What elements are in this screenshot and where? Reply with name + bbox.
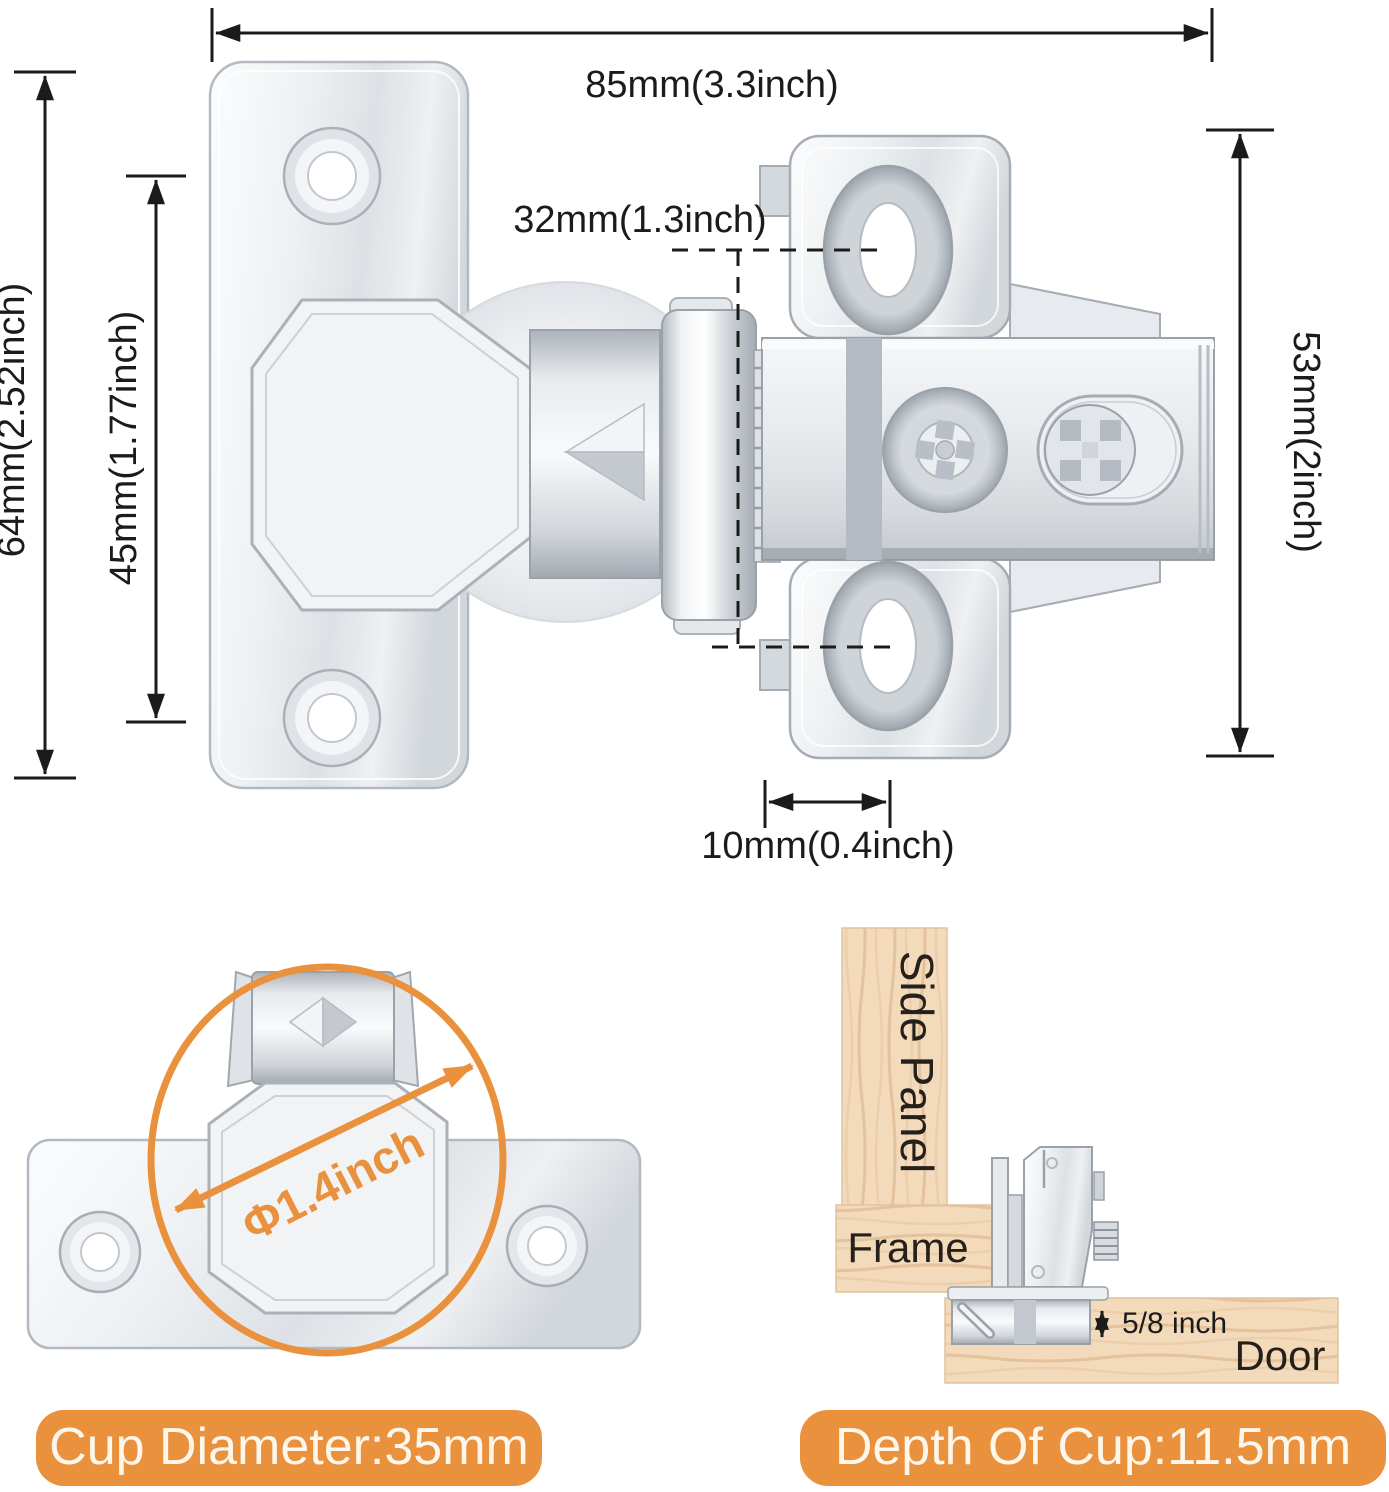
adjust-screw [883, 388, 1007, 512]
cup-view-hole-left [60, 1212, 140, 1292]
dim-64-label: 64mm(2.52inch) [0, 283, 33, 558]
frame-label: Frame [847, 1224, 968, 1271]
hinge-pin-detail [1094, 1172, 1104, 1200]
cup-badge-label: Cup Diameter:35mm [49, 1418, 529, 1476]
side-panel-label: Side Panel [891, 951, 943, 1174]
dim-door-hole-spacing: 45mm(1.77inch) [103, 176, 186, 722]
door-label: Door [1234, 1332, 1325, 1379]
door-plate-hole-bottom [284, 670, 380, 766]
overlay-label: 5/8 inch [1122, 1307, 1227, 1340]
cam-adjuster [1038, 396, 1182, 504]
hinge-screw [1094, 1222, 1118, 1260]
cup-flange [948, 1287, 1108, 1300]
mounting-wing-top [1010, 284, 1160, 340]
dim-10-label: 10mm(0.4inch) [701, 825, 954, 867]
arm-bottom-shadow [762, 548, 1214, 560]
main-hinge-diagram: 85mm(3.3inch) 64mm(2.52inch) 45mm(1.77in… [0, 8, 1327, 867]
installation-view: Side Panel Frame Door 5/8 inch [800, 928, 1386, 1486]
dim-plate-height: 64mm(2.52inch) [0, 72, 76, 778]
hinge-bracket [1008, 1195, 1022, 1287]
mounting-plate [760, 136, 1214, 758]
arm-left-band [846, 338, 882, 560]
cup-foot-band [1014, 1300, 1036, 1344]
door-plate-hole-top [284, 128, 380, 224]
hinge-dimension-diagram: 85mm(3.3inch) 64mm(2.52inch) 45mm(1.77in… [0, 0, 1389, 1492]
hinge-pivot [662, 310, 756, 620]
dim-53-label: 53mm(2inch) [1285, 331, 1327, 553]
diagram-canvas: 85mm(3.3inch) 64mm(2.52inch) 45mm(1.77in… [0, 0, 1389, 1492]
cup-view-hole-right [507, 1206, 587, 1286]
hinge-body [1024, 1147, 1092, 1287]
cup-octagon [252, 300, 532, 610]
mounting-wing-bottom [1010, 558, 1160, 612]
dim-offset: 10mm(0.4inch) [701, 780, 954, 867]
dim-mounting-height: 53mm(2inch) [1206, 130, 1327, 756]
cup-diameter-view: Φ1.4inch Cup Diameter:35mm [28, 967, 640, 1486]
dim-width-label: 85mm(3.3inch) [585, 64, 838, 106]
depth-badge-label: Depth Of Cup:11.5mm [835, 1418, 1351, 1476]
hinge-back-plate [992, 1158, 1008, 1288]
dim-32-label: 32mm(1.3inch) [513, 199, 766, 241]
dim-45-label: 45mm(1.77inch) [103, 311, 145, 586]
arm-top-highlight [762, 341, 1214, 349]
